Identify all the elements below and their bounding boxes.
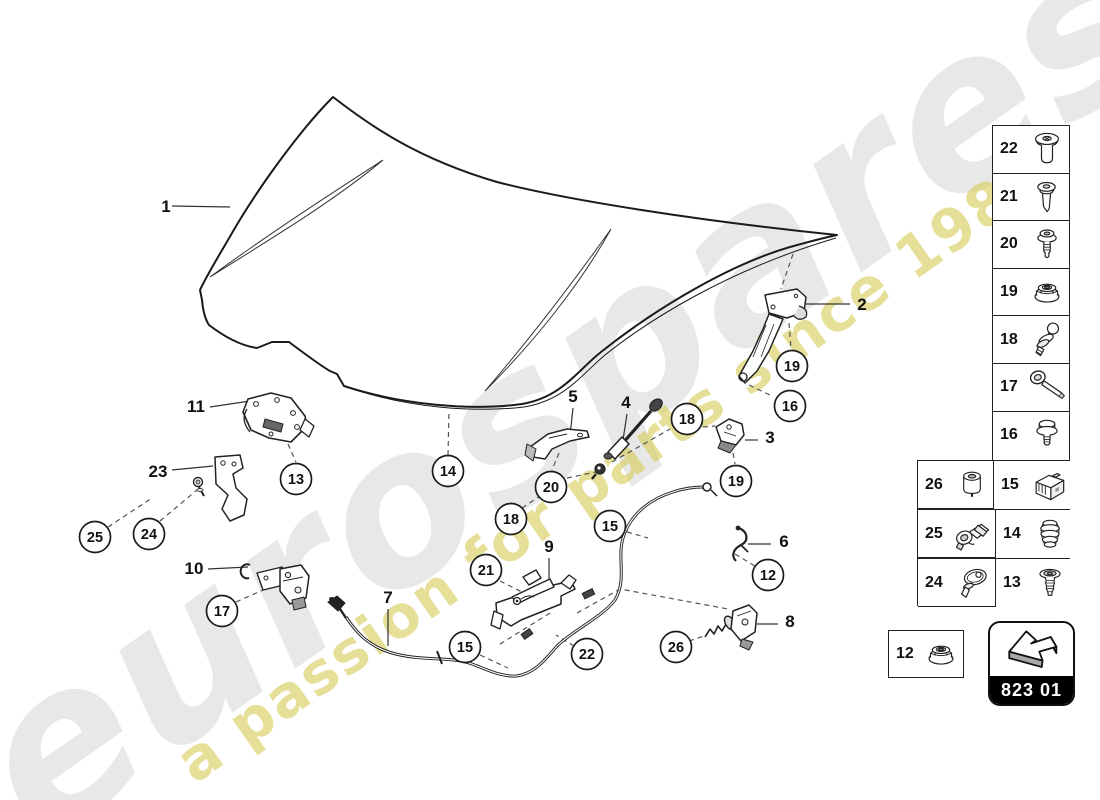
clip-part-6	[733, 526, 748, 561]
rubber-buffer-icon	[1029, 513, 1071, 555]
sidebar-cell-13[interactable]: 13	[996, 559, 1071, 607]
part-label-7[interactable]: 7	[383, 588, 392, 607]
part-number: 24	[918, 574, 951, 592]
part-number: 14	[996, 525, 1029, 543]
pan-head-screw-icon	[1025, 127, 1069, 171]
callout-26[interactable]: 26	[661, 632, 692, 663]
callout-12[interactable]: 12	[753, 560, 784, 591]
callout-15[interactable]: 15	[595, 511, 626, 542]
svg-text:22: 22	[579, 647, 595, 663]
part-label-5[interactable]: 5	[568, 387, 577, 406]
part-label-6[interactable]: 6	[779, 532, 788, 551]
sidebar-cell-26[interactable]: 26	[918, 461, 994, 509]
callout-18[interactable]: 18	[672, 404, 703, 435]
svg-text:13: 13	[288, 472, 304, 488]
arrow-icon	[990, 623, 1073, 676]
sidebar-cell-15[interactable]: 15	[994, 461, 1071, 509]
svg-text:14: 14	[440, 464, 456, 480]
sidebar-cell-16[interactable]: 16	[993, 412, 1069, 460]
part-number: 16	[993, 426, 1025, 444]
sidebar-cell-18[interactable]: 18	[993, 316, 1069, 364]
diagram-canvas: 1325241714201818151521222612191619 11123…	[0, 0, 1100, 800]
bracket-part-23	[194, 455, 248, 521]
callout-13[interactable]: 13	[281, 464, 312, 495]
svg-text:18: 18	[679, 412, 695, 428]
cable-clamp-icon	[951, 512, 995, 556]
part-label-3[interactable]: 3	[765, 428, 774, 447]
part-label-4[interactable]: 4	[621, 393, 631, 412]
sidebar-single-column: 22212019181716	[992, 125, 1070, 462]
hood-outline	[200, 97, 837, 409]
hood-crease-left	[210, 160, 383, 277]
parts-diagram-page: eurospares a passion for parts since 198…	[0, 0, 1100, 800]
part-number: 13	[996, 574, 1029, 592]
sidebar-cell-20[interactable]: 20	[993, 221, 1069, 269]
flanged-screw-icon	[1025, 222, 1069, 266]
svg-text:18: 18	[503, 512, 519, 528]
callout-17[interactable]: 17	[207, 596, 238, 627]
washer-screw-icon	[1025, 175, 1069, 219]
callout-19[interactable]: 19	[721, 466, 752, 497]
sidebar-cell-25[interactable]: 25	[918, 510, 996, 558]
part-number: 18	[993, 331, 1025, 349]
sidebar-cell-17[interactable]: 17	[993, 364, 1069, 412]
svg-text:26: 26	[668, 640, 684, 656]
part-label-10[interactable]: 10	[185, 559, 204, 578]
part-label-2[interactable]: 2	[857, 295, 866, 314]
svg-text:21: 21	[478, 563, 494, 579]
oval-head-screw-icon	[951, 561, 995, 605]
bracket-part-5	[525, 429, 589, 461]
svg-text:15: 15	[602, 519, 618, 535]
part-number: 15	[994, 476, 1027, 494]
sidebar-cell-22[interactable]: 22	[993, 126, 1069, 174]
page-code-box[interactable]: 823 01	[988, 621, 1075, 706]
spacer-bushing-icon	[951, 464, 993, 506]
expanding-rivet-icon	[1029, 562, 1071, 604]
part-number: 22	[993, 140, 1025, 158]
svg-text:24: 24	[141, 527, 157, 543]
latch-part-3	[716, 419, 744, 453]
clip-block-icon	[1027, 463, 1071, 507]
buffer-part-8	[705, 605, 757, 650]
callout-16[interactable]: 16	[775, 391, 806, 422]
part-label-11[interactable]: 11	[187, 397, 205, 416]
lock-part-10	[241, 564, 309, 610]
callout-18[interactable]: 18	[496, 504, 527, 535]
svg-text:25: 25	[87, 530, 103, 546]
svg-text:19: 19	[784, 359, 800, 375]
ball-stud-icon	[1025, 318, 1069, 362]
hinge-part-11	[243, 393, 314, 442]
part-label-8[interactable]: 8	[785, 612, 794, 631]
part-number: 26	[918, 476, 951, 494]
release-lever-part-9	[491, 570, 576, 629]
svg-text:16: 16	[782, 399, 798, 415]
sidebar-grid: 261525142413	[917, 460, 1070, 606]
callout-14[interactable]: 14	[433, 456, 464, 487]
part-number: 20	[993, 235, 1025, 253]
callout-21[interactable]: 21	[471, 555, 502, 586]
part-label-9[interactable]: 9	[544, 537, 553, 556]
callout-24[interactable]: 24	[134, 519, 165, 550]
page-code-label: 823 01	[990, 676, 1073, 704]
hex-flange-bolt-icon	[1025, 413, 1069, 457]
part-label-23[interactable]: 23	[149, 462, 168, 481]
sidebar-cell-21[interactable]: 21	[993, 174, 1069, 222]
sidebar-cell-19[interactable]: 19	[993, 269, 1069, 317]
part-number: 19	[993, 283, 1025, 301]
svg-text:19: 19	[728, 474, 744, 490]
part-number: 25	[918, 525, 951, 543]
callout-25[interactable]: 25	[80, 522, 111, 553]
sidebar-cell-14[interactable]: 14	[996, 510, 1071, 558]
svg-text:15: 15	[457, 640, 473, 656]
sidebar-cell-24[interactable]: 24	[918, 559, 996, 607]
cable-part-15	[521, 483, 717, 646]
callout-15[interactable]: 15	[450, 632, 481, 663]
callout-20[interactable]: 20	[536, 472, 567, 503]
callout-19[interactable]: 19	[777, 351, 808, 382]
eye-bolt-icon	[1025, 365, 1069, 409]
part-number: 21	[993, 188, 1025, 206]
flange-nut-icon	[1025, 270, 1069, 314]
svg-text:12: 12	[760, 568, 776, 584]
part-12-box[interactable]: 12	[888, 630, 964, 678]
svg-text:17: 17	[214, 604, 230, 620]
flange-nut-icon	[919, 632, 963, 676]
part-number: 12	[889, 645, 919, 663]
part-number: 17	[993, 378, 1025, 396]
callout-22[interactable]: 22	[572, 639, 603, 670]
part-label-1[interactable]: 1	[161, 197, 170, 216]
svg-text:20: 20	[543, 480, 559, 496]
